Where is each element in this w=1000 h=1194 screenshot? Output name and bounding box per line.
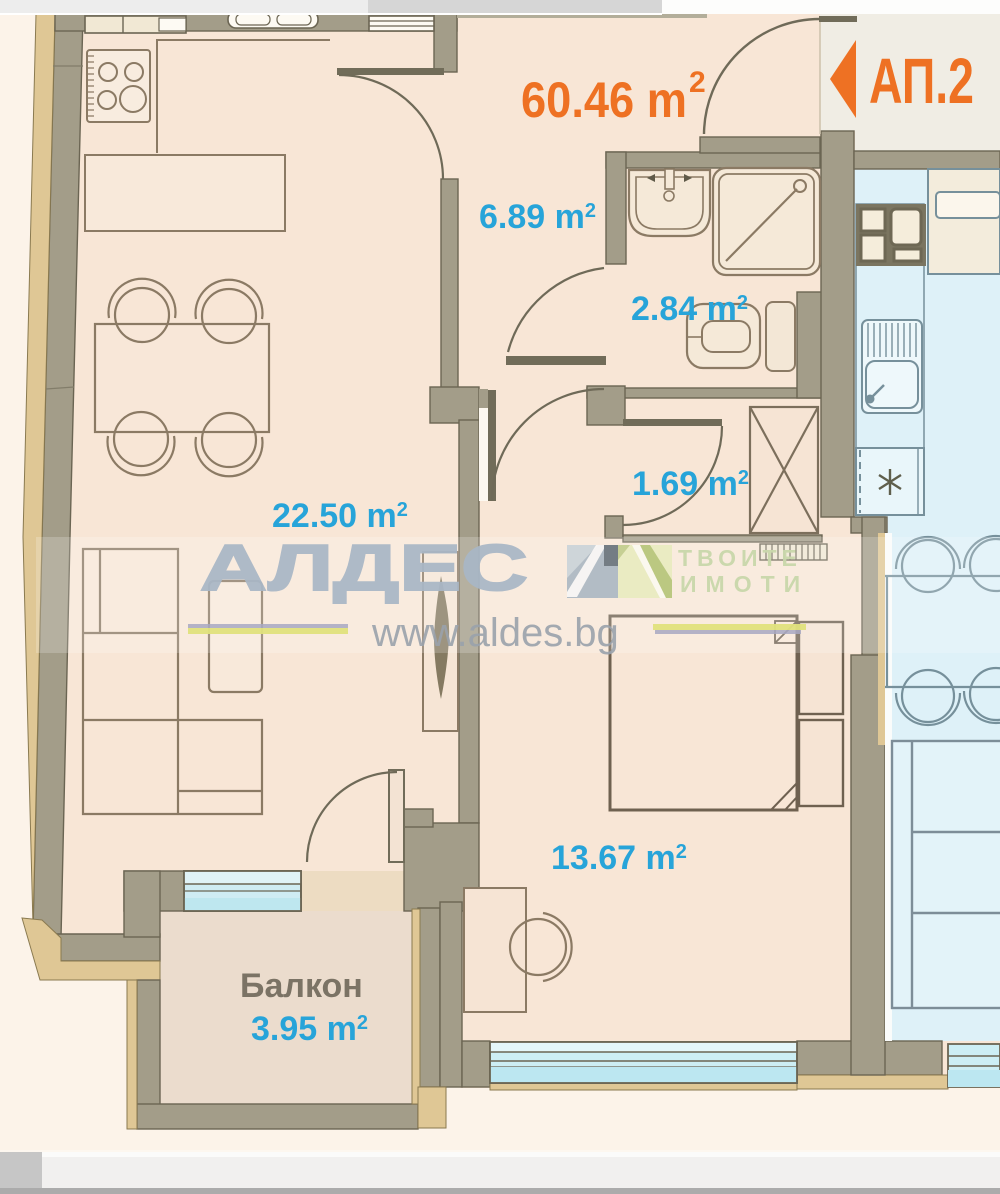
svg-text:1.69 m2: 1.69 m2: [632, 465, 749, 503]
svg-text:ИМОТИ: ИМОТИ: [680, 571, 809, 597]
svg-text:2: 2: [689, 66, 706, 99]
svg-text:www.aldes.bg: www.aldes.bg: [371, 611, 619, 655]
svg-text:13.67 m2: 13.67 m2: [551, 839, 687, 877]
svg-text:Балкон: Балкон: [240, 967, 363, 1005]
svg-text:6.89 m2: 6.89 m2: [479, 198, 596, 236]
svg-text:АП.2: АП.2: [869, 45, 974, 117]
svg-text:ТВОИТЕ: ТВОИТЕ: [678, 545, 802, 571]
svg-text:АЛДЕС: АЛДЕС: [200, 531, 528, 604]
svg-text:60.46 m: 60.46 m: [521, 72, 687, 128]
svg-text:22.50 m2: 22.50 m2: [272, 497, 408, 535]
svg-text:2.84 m2: 2.84 m2: [631, 290, 748, 328]
svg-text:3.95 m2: 3.95 m2: [251, 1010, 368, 1048]
